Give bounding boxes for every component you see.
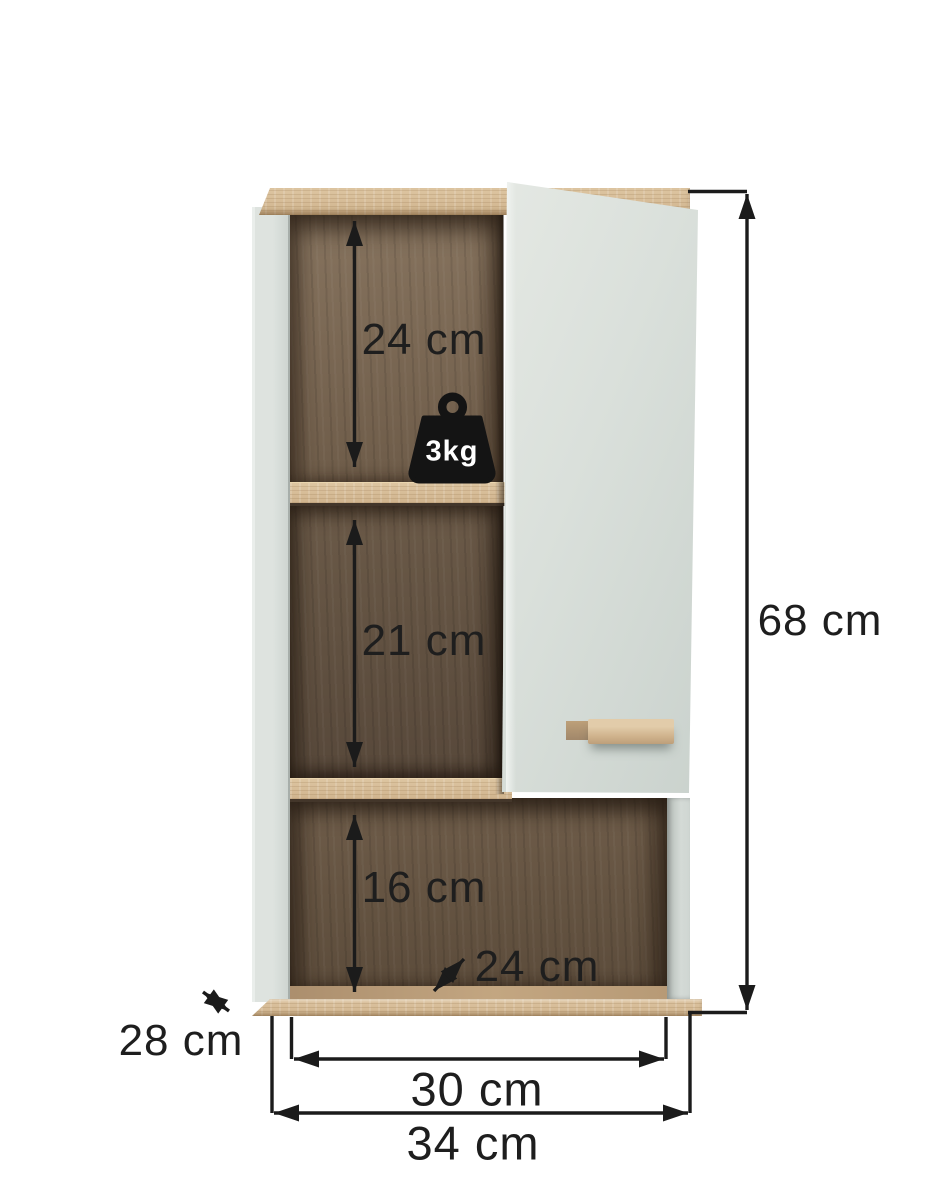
dim-label-inner-depth: 24 cm — [475, 945, 600, 989]
dim-arrow-depth — [203, 992, 229, 1011]
door-handle — [588, 719, 674, 744]
dim-label-inner-width: 30 cm — [411, 1066, 544, 1113]
cabinet-bottom-panel — [252, 999, 702, 1016]
cabinet-door — [502, 181, 702, 795]
dim-label-depth: 28 cm — [119, 1019, 244, 1063]
dim-label-middle-section: 21 cm — [362, 619, 487, 663]
dim-arrow-height — [688, 192, 747, 1013]
dimension-diagram-canvas: 24 cm 21 cm 16 cm 24 cm 28 cm 68 cm 30 c… — [0, 0, 939, 1200]
cabinet-left-side-panel — [252, 207, 290, 1002]
cabinet-right-side-panel — [667, 798, 690, 999]
cabinet-shelf-lower — [290, 778, 512, 802]
dim-label-width: 34 cm — [407, 1120, 540, 1167]
dim-arrow-inner-width — [292, 1017, 667, 1059]
dim-label-bottom-section: 16 cm — [362, 866, 487, 910]
door-gap-shadow — [495, 214, 504, 794]
dim-label-height: 68 cm — [758, 599, 883, 643]
cabinet-shelf-upper — [290, 482, 506, 506]
weight-capacity-label: 3kg — [426, 436, 479, 469]
dim-label-top-section: 24 cm — [362, 318, 487, 362]
